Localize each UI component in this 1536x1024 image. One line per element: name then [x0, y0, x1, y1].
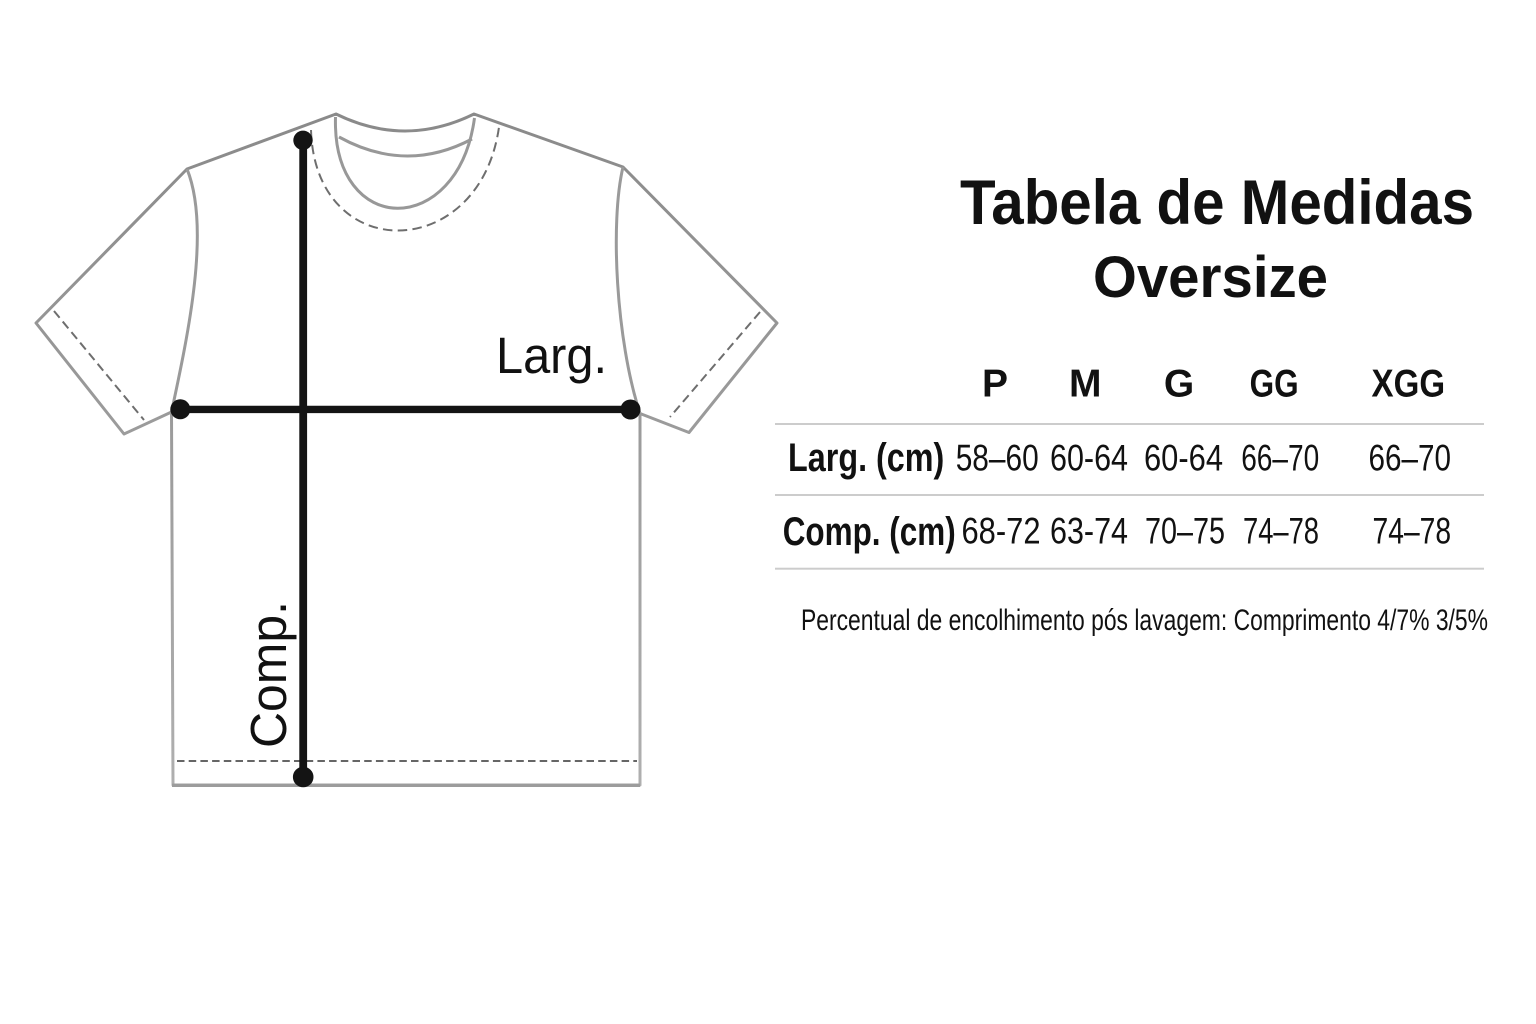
- svg-text:70–75: 70–75: [1145, 510, 1225, 552]
- svg-text:66–70: 66–70: [1369, 437, 1452, 479]
- svg-text:Tabela de Medidas: Tabela de Medidas: [960, 168, 1474, 238]
- svg-text:66–70: 66–70: [1241, 437, 1319, 479]
- svg-text:63-74: 63-74: [1050, 510, 1128, 552]
- svg-text:Comp. (cm): Comp. (cm): [783, 510, 956, 554]
- svg-text:74–78: 74–78: [1373, 510, 1452, 552]
- svg-text:Oversize: Oversize: [1093, 245, 1328, 310]
- svg-text:60-64: 60-64: [1144, 437, 1223, 479]
- svg-text:74–78: 74–78: [1243, 510, 1319, 552]
- svg-text:Percentual de encolhimento pós: Percentual de encolhimento pós lavagem: …: [801, 604, 1488, 637]
- svg-text:Larg. (cm): Larg. (cm): [788, 436, 944, 480]
- svg-text:P: P: [982, 363, 1008, 406]
- svg-text:M: M: [1069, 363, 1102, 406]
- svg-text:68-72: 68-72: [962, 510, 1041, 552]
- svg-text:Larg.: Larg.: [496, 327, 607, 384]
- svg-text:XGG: XGG: [1372, 363, 1446, 406]
- svg-text:Comp.: Comp.: [240, 601, 297, 748]
- svg-text:GG: GG: [1250, 363, 1299, 406]
- svg-text:G: G: [1164, 363, 1194, 406]
- svg-text:60-64: 60-64: [1050, 437, 1128, 479]
- svg-text:58–60: 58–60: [956, 437, 1039, 479]
